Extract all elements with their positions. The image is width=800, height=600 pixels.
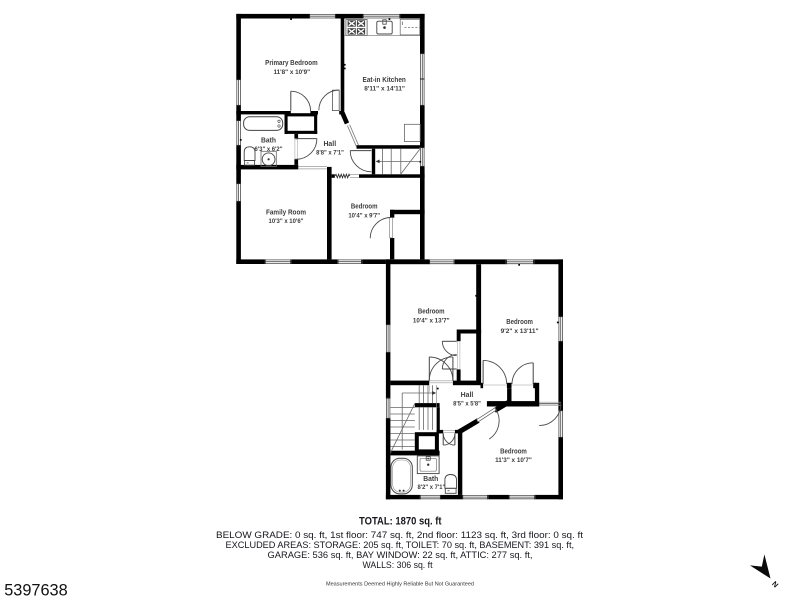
- svg-text:11'8" x 10'9": 11'8" x 10'9": [273, 69, 310, 76]
- svg-text:Bath: Bath: [423, 476, 438, 483]
- svg-text:11'3" x 10'7": 11'3" x 10'7": [495, 457, 532, 464]
- svg-text:8'11" x 14'11": 8'11" x 14'11": [364, 86, 405, 93]
- svg-text:5397638: 5397638: [4, 581, 67, 600]
- svg-text:Bath: Bath: [261, 138, 276, 145]
- svg-text:WALLS: 306 sq. ft: WALLS: 306 sq. ft: [363, 559, 433, 570]
- svg-text:Bedroom: Bedroom: [506, 319, 533, 326]
- svg-text:Hall: Hall: [461, 392, 474, 399]
- svg-text:6'3" x 6'2": 6'3" x 6'2": [255, 146, 283, 153]
- svg-text:Measurements Deemed Highly Rel: Measurements Deemed Highly Reliable But …: [326, 581, 474, 587]
- svg-text:TOTAL: 1870 sq. ft: TOTAL: 1870 sq. ft: [359, 516, 442, 528]
- svg-text:10'3" x 10'6": 10'3" x 10'6": [269, 218, 304, 225]
- svg-text:8'2" x 7'1": 8'2" x 7'1": [418, 484, 446, 491]
- svg-text:Bedroom: Bedroom: [351, 204, 378, 211]
- svg-text:Bedroom: Bedroom: [418, 309, 445, 316]
- svg-text:8'8" x 7'1": 8'8" x 7'1": [316, 149, 344, 156]
- svg-text:Bedroom: Bedroom: [500, 448, 527, 455]
- svg-text:10'4" x 9'7": 10'4" x 9'7": [348, 212, 380, 219]
- svg-text:Hall: Hall: [323, 141, 336, 148]
- svg-text:Eat-in Kitchen: Eat-in Kitchen: [363, 77, 406, 84]
- svg-text:8'5" x 5'8": 8'5" x 5'8": [453, 400, 481, 407]
- svg-text:Primary Bedroom: Primary Bedroom: [265, 60, 318, 67]
- svg-text:Family Room: Family Room: [266, 209, 306, 216]
- svg-text:9'2" x 13'11": 9'2" x 13'11": [501, 328, 539, 335]
- svg-text:10'4" x 13'7": 10'4" x 13'7": [413, 317, 450, 324]
